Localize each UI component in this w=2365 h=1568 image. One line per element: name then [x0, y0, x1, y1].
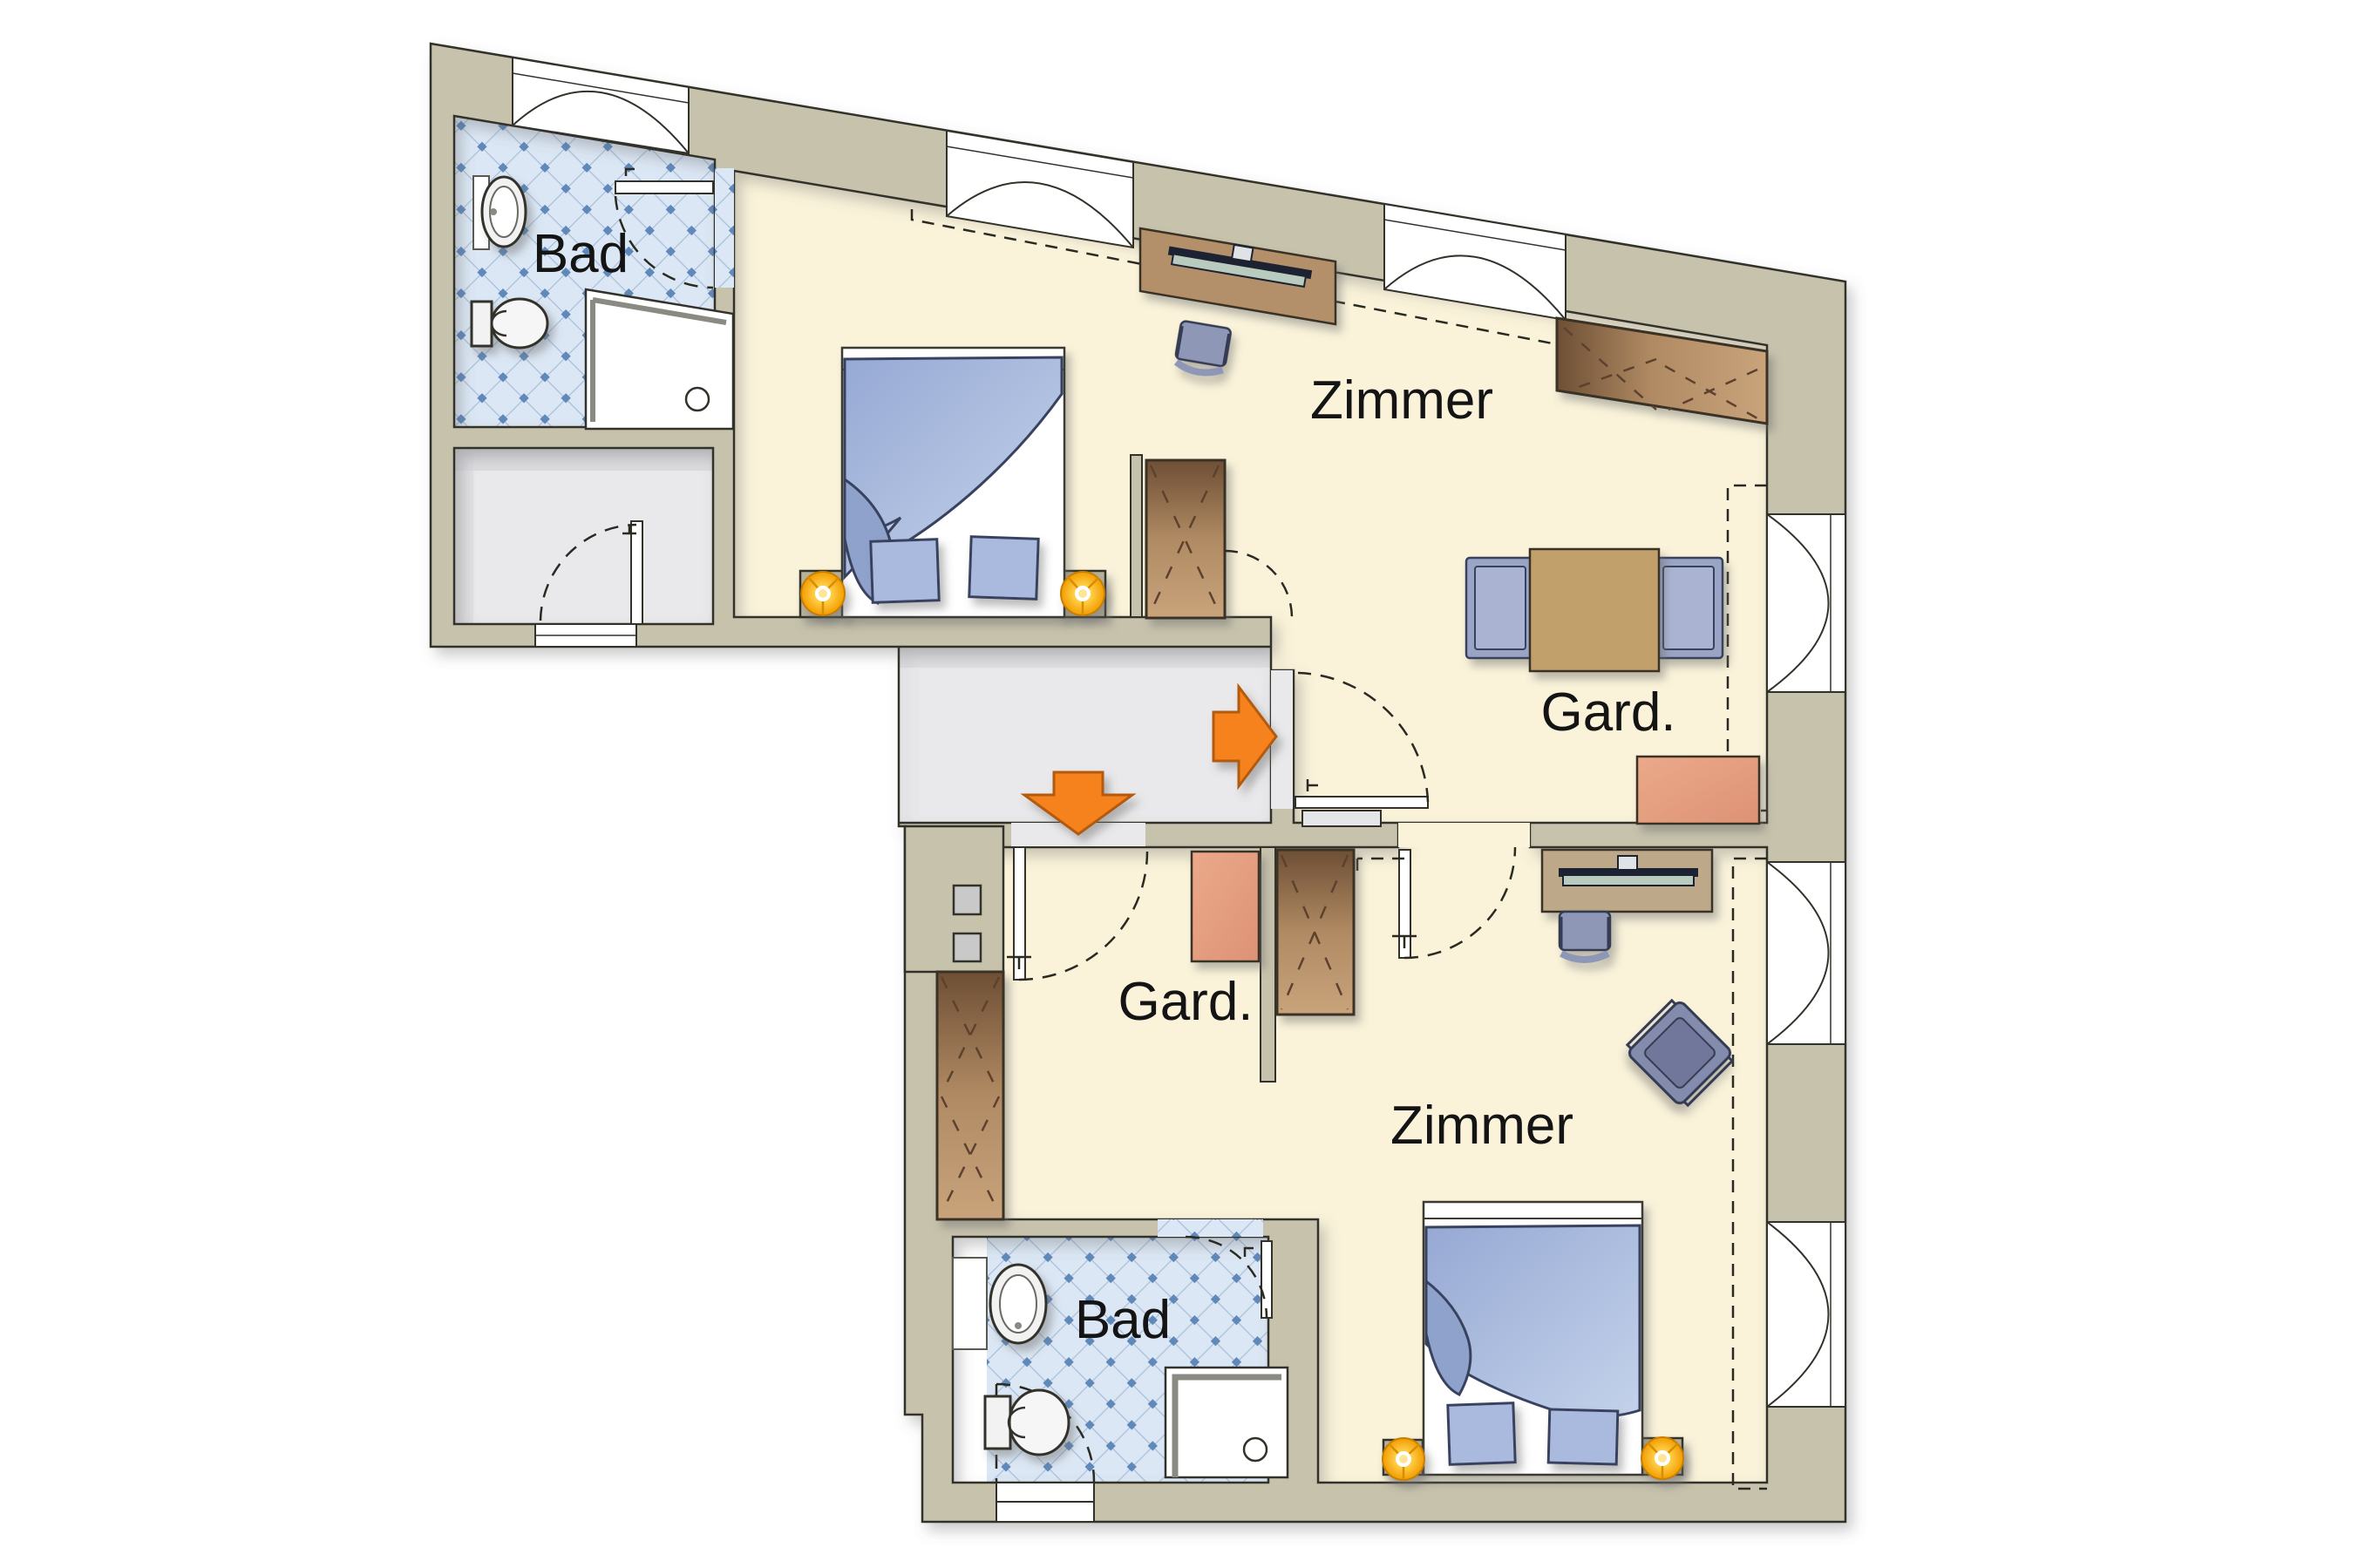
svg-text:Zimmer: Zimmer: [1390, 1096, 1573, 1156]
svg-text:Bad: Bad: [533, 224, 629, 284]
svg-text:Gard.: Gard.: [1118, 972, 1253, 1032]
svg-text:Gard.: Gard.: [1540, 682, 1675, 743]
svg-text:Bad: Bad: [1075, 1290, 1171, 1350]
svg-text:Zimmer: Zimmer: [1310, 370, 1493, 431]
